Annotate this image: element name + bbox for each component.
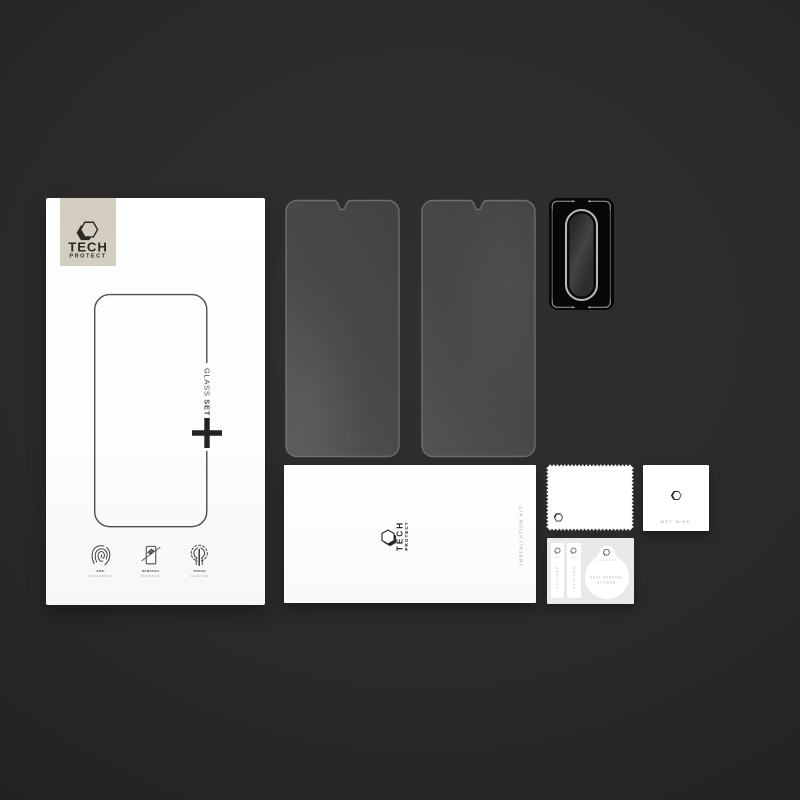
svg-text:TECH PROTECT: TECH PROTECT [597, 560, 617, 562]
svg-text:DUST REMOVAL: DUST REMOVAL [590, 575, 623, 579]
svg-text:STICKER: STICKER [597, 580, 616, 584]
svg-text:PROTECT: PROTECT [404, 521, 409, 550]
svg-text:PROTECT: PROTECT [69, 253, 106, 259]
svg-text:TECH: TECH [68, 239, 108, 254]
